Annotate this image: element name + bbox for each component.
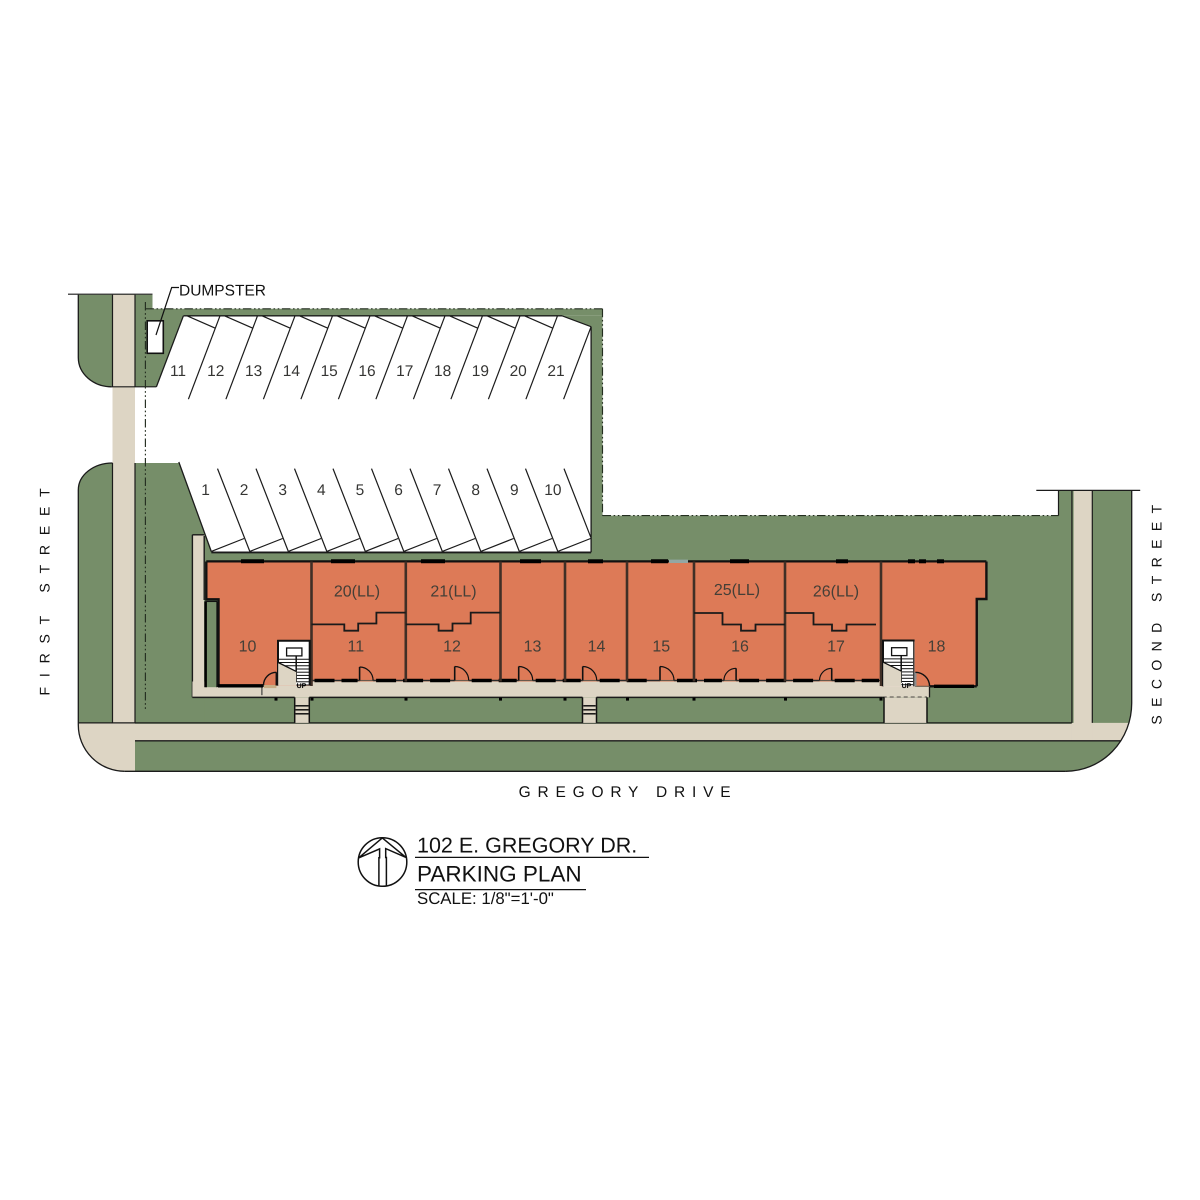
svg-text:14: 14 (283, 363, 301, 380)
svg-text:DUMPSTER: DUMPSTER (179, 283, 266, 300)
svg-text:12: 12 (207, 363, 224, 380)
svg-text:10: 10 (544, 482, 562, 499)
svg-text:21: 21 (547, 363, 564, 380)
svg-text:4: 4 (317, 482, 326, 499)
svg-text:GREGORY DRIVE: GREGORY DRIVE (519, 784, 738, 801)
svg-text:10: 10 (239, 639, 257, 656)
svg-text:UP: UP (902, 683, 912, 690)
svg-text:UP: UP (297, 683, 307, 690)
svg-text:26(LL): 26(LL) (813, 584, 859, 601)
svg-text:FIRST STREET: FIRST STREET (37, 479, 53, 696)
svg-text:14: 14 (588, 639, 606, 656)
svg-text:3: 3 (278, 482, 287, 499)
svg-text:17: 17 (396, 363, 413, 380)
svg-text:20: 20 (510, 363, 528, 380)
svg-text:9: 9 (510, 482, 519, 499)
svg-text:SECOND STREET: SECOND STREET (1149, 496, 1165, 724)
svg-text:2: 2 (240, 482, 249, 499)
svg-text:PARKING PLAN: PARKING PLAN (417, 862, 582, 887)
svg-text:16: 16 (358, 363, 375, 380)
svg-text:16: 16 (731, 639, 749, 656)
svg-text:19: 19 (472, 363, 489, 380)
svg-text:102 E. GREGORY DR.: 102 E. GREGORY DR. (417, 834, 637, 858)
svg-text:21(LL): 21(LL) (430, 584, 476, 601)
svg-text:12: 12 (443, 639, 461, 656)
svg-text:13: 13 (245, 363, 262, 380)
svg-text:1: 1 (201, 482, 210, 499)
svg-text:18: 18 (434, 363, 451, 380)
svg-text:15: 15 (321, 363, 338, 380)
svg-text:6: 6 (394, 482, 403, 499)
svg-text:18: 18 (928, 639, 946, 656)
svg-text:8: 8 (471, 482, 480, 499)
svg-text:5: 5 (356, 482, 365, 499)
svg-text:20(LL): 20(LL) (334, 584, 380, 601)
svg-text:7: 7 (433, 482, 442, 499)
svg-text:17: 17 (827, 639, 845, 656)
svg-text:11: 11 (347, 639, 364, 656)
svg-text:13: 13 (524, 639, 542, 656)
svg-text:SCALE: 1/8"=1'-0": SCALE: 1/8"=1'-0" (417, 889, 554, 908)
svg-text:11: 11 (170, 363, 186, 380)
svg-text:15: 15 (652, 639, 670, 656)
svg-text:25(LL): 25(LL) (714, 582, 760, 599)
